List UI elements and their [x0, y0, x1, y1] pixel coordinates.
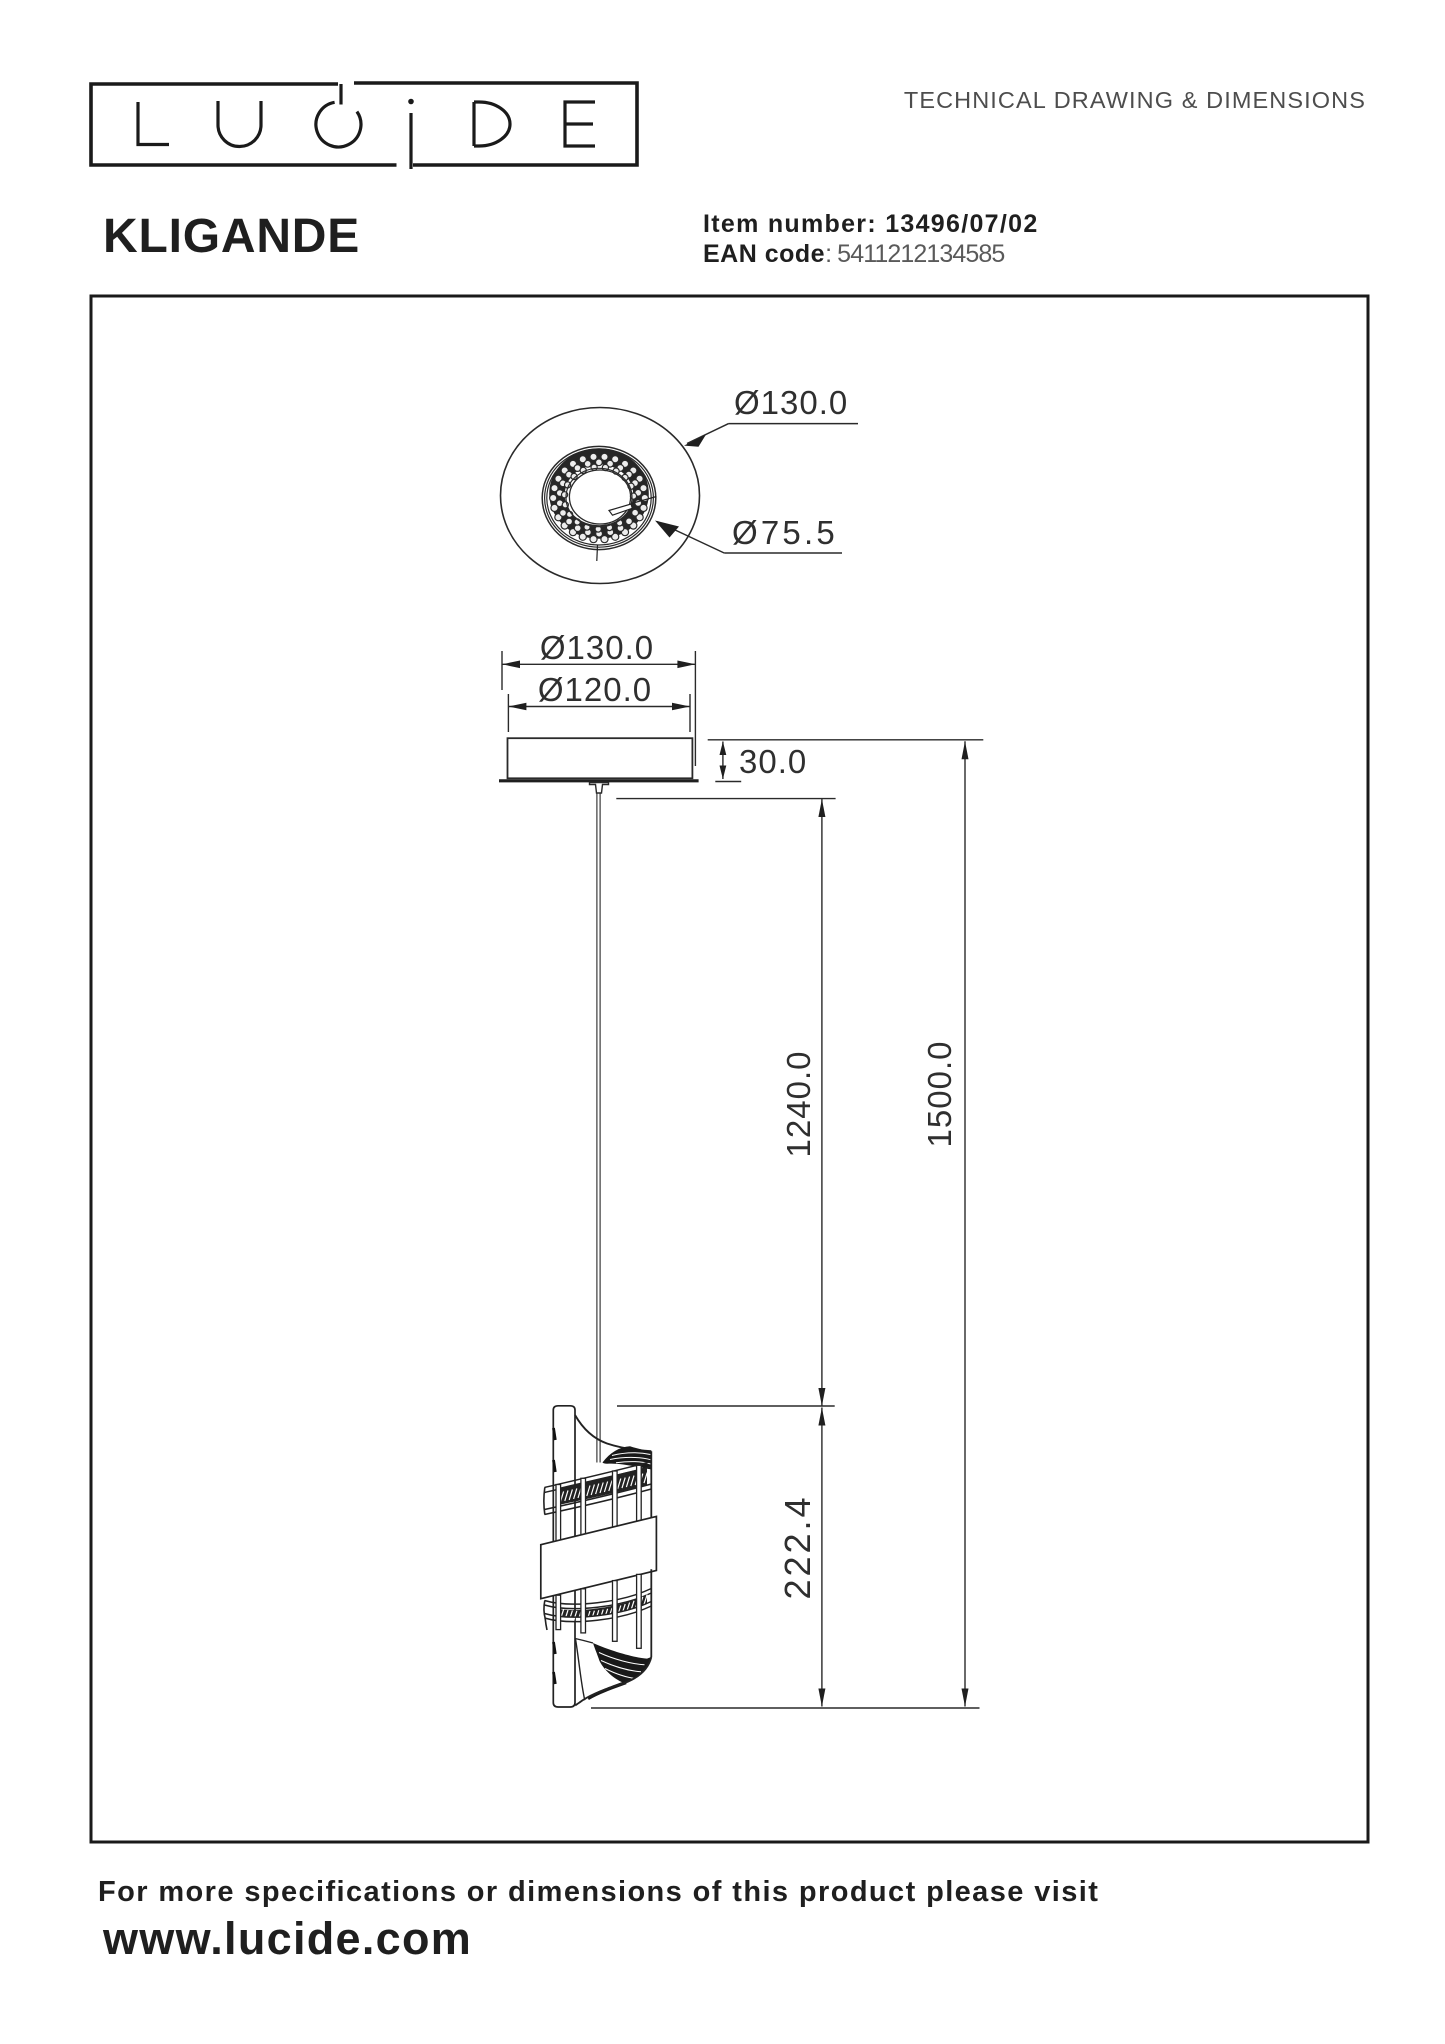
svg-text:Ø130.0: Ø130.0	[540, 629, 654, 666]
svg-text:KLIGANDE: KLIGANDE	[103, 210, 360, 263]
svg-text:www.lucide.com: www.lucide.com	[102, 1913, 472, 1964]
svg-text:Item number: 13496/07/02: Item number: 13496/07/02	[703, 210, 1039, 238]
svg-text:1240.0: 1240.0	[780, 1051, 817, 1158]
svg-text:Ø130.0: Ø130.0	[734, 384, 848, 421]
svg-text:TECHNICAL DRAWING & DIMENSIONS: TECHNICAL DRAWING & DIMENSIONS	[904, 87, 1366, 113]
svg-text:For more specifications or dim: For more specifications or dimensions of…	[98, 1876, 1099, 1908]
svg-text:EAN code: 5411212134585: EAN code: 5411212134585	[703, 240, 1004, 268]
svg-text:Ø120.0: Ø120.0	[538, 671, 652, 708]
svg-text:1500.0: 1500.0	[921, 1041, 958, 1148]
svg-text:30.0: 30.0	[739, 743, 807, 780]
svg-text:222.4: 222.4	[777, 1494, 818, 1599]
svg-text:Ø75.5: Ø75.5	[732, 514, 838, 551]
